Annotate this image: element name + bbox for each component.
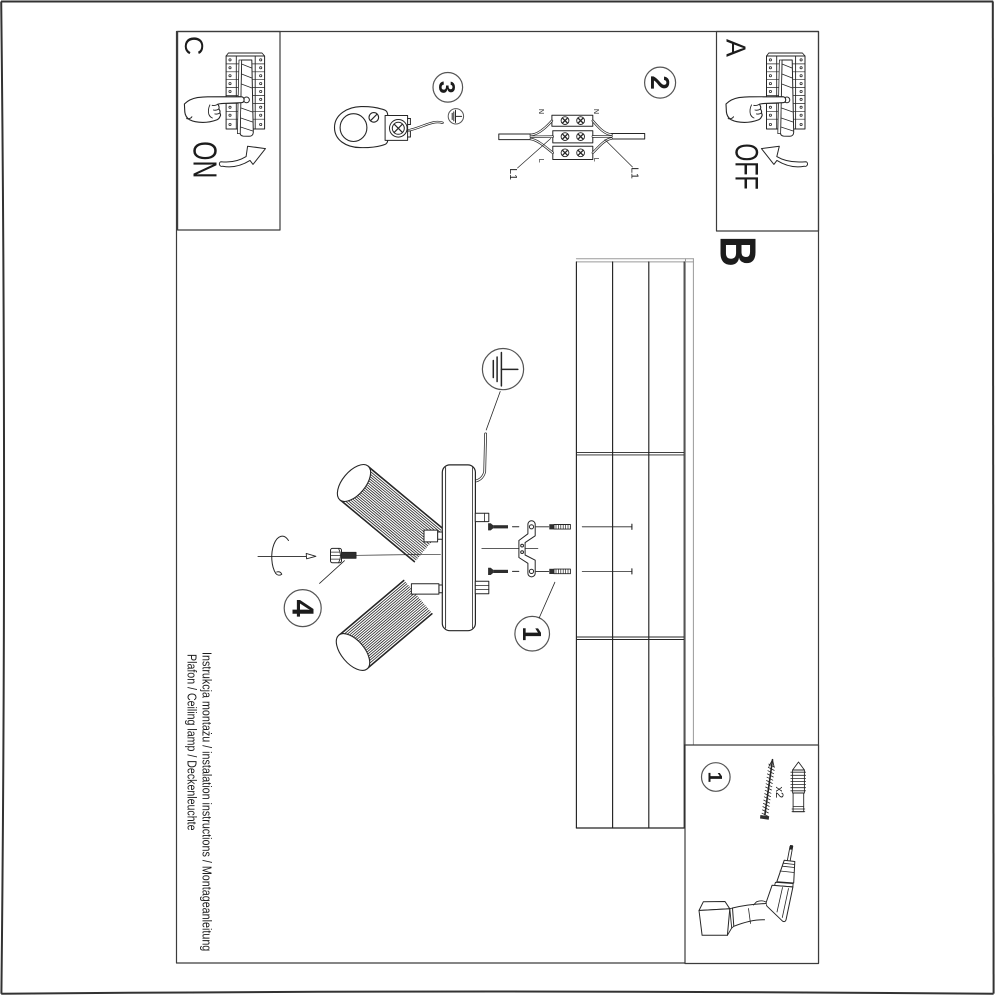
svg-text:x2: x2 <box>773 787 785 799</box>
svg-text:2: 2 <box>645 76 673 90</box>
svg-text:L: L <box>592 158 601 162</box>
svg-text:C: C <box>179 36 207 55</box>
svg-text:L: L <box>537 159 546 163</box>
svg-text:N: N <box>537 109 546 114</box>
svg-text:N: N <box>592 109 601 114</box>
svg-text:B: B <box>709 236 766 267</box>
svg-text:A: A <box>720 39 751 58</box>
svg-text:3: 3 <box>434 81 460 94</box>
svg-text:L1: L1 <box>507 168 519 180</box>
svg-text:ON: ON <box>186 141 223 178</box>
svg-text:L1: L1 <box>628 167 640 179</box>
svg-text:1: 1 <box>517 627 545 641</box>
svg-text:Plafon / Ceiling lamp / Decken: Plafon / Ceiling lamp / Deckenleuchte <box>185 654 200 831</box>
svg-text:OFF: OFF <box>729 143 765 189</box>
svg-text:4: 4 <box>285 599 320 617</box>
svg-text:1: 1 <box>704 772 726 783</box>
svg-text:Instrukcja montażu / instalati: Instrukcja montażu / instalation instruc… <box>200 652 215 951</box>
